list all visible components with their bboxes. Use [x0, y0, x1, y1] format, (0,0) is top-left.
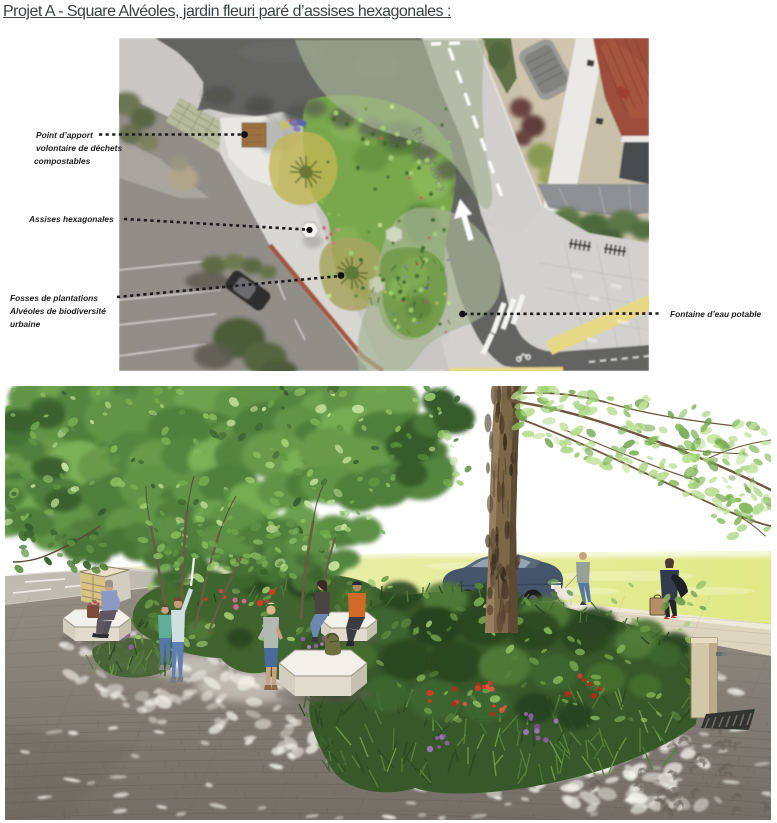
svg-text:volontaire de déchets: volontaire de déchets	[36, 143, 122, 153]
svg-text:Assises hexagonales: Assises hexagonales	[28, 214, 114, 224]
svg-text:Fosses de plantations: Fosses de plantations	[10, 293, 98, 303]
svg-text:Fontaine d’eau potable: Fontaine d’eau potable	[670, 309, 762, 319]
svg-text:Alvéoles de biodiversité: Alvéoles de biodiversité	[9, 306, 106, 316]
svg-text:urbaine: urbaine	[10, 319, 41, 329]
svg-text:compostables: compostables	[34, 156, 91, 166]
svg-text:Point d’apport: Point d’apport	[36, 130, 94, 140]
